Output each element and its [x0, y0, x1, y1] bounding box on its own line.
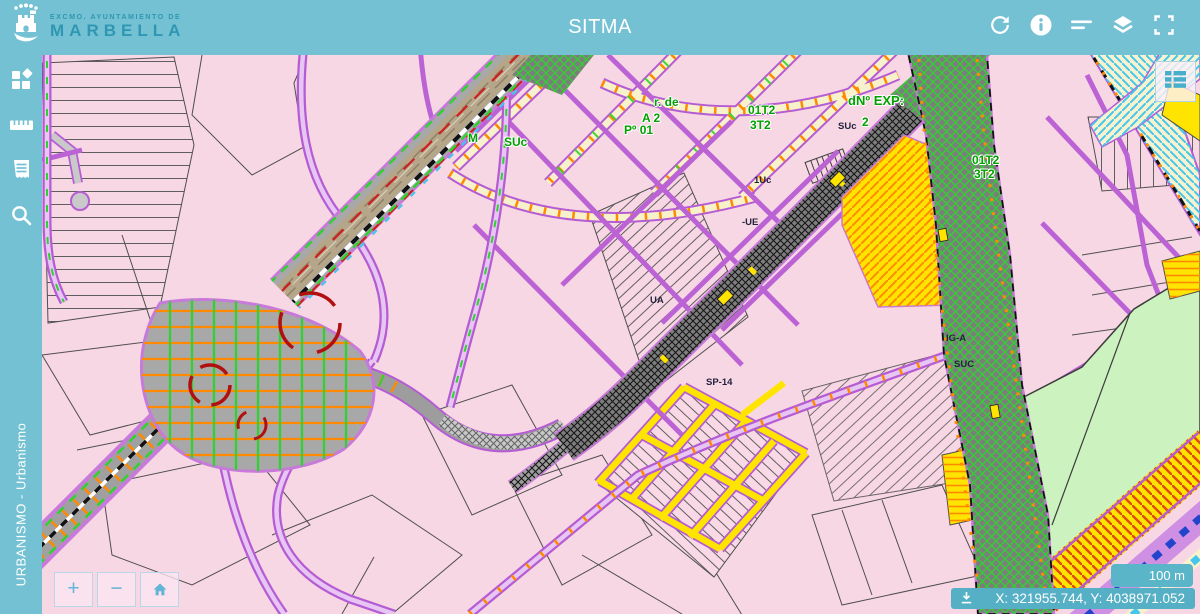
layers-button[interactable]	[1109, 14, 1137, 42]
sidebar-footer-label: URBANISMO - Urbanismo	[14, 422, 29, 586]
app-header: EXCMO. AYUNTAMIENTO DE MARBELLA SITMA	[0, 0, 1200, 55]
widgets-icon	[10, 68, 33, 96]
sidebar-item-forms[interactable]	[8, 159, 34, 185]
brand-text: EXCMO. AYUNTAMIENTO DE MARBELLA	[50, 14, 185, 40]
search-icon	[10, 204, 32, 231]
brand-line2: MARBELLA	[50, 22, 185, 41]
fullscreen-button[interactable]	[1150, 14, 1178, 42]
info-button[interactable]	[1027, 14, 1055, 42]
coordinates-bar[interactable]: X: 321955.744, Y: 4038971.052	[951, 588, 1195, 609]
fullscreen-icon	[1154, 15, 1174, 40]
scale-bar: 100 m	[1111, 564, 1193, 587]
sidebar-item-search[interactable]	[8, 204, 34, 230]
sidebar-item-widgets[interactable]	[8, 69, 34, 95]
coordinates-text: X: 321955.744, Y: 4038971.052	[995, 591, 1185, 606]
header-actions	[986, 14, 1200, 42]
layer-list-button[interactable]	[1155, 61, 1196, 102]
lines-icon	[1071, 16, 1093, 39]
zoom-out-button[interactable]: −	[97, 572, 136, 607]
basemap-svg	[42, 55, 1200, 614]
sidebar: URBANISMO - Urbanismo	[0, 55, 42, 614]
zoom-in-button[interactable]: +	[54, 572, 93, 607]
brand: EXCMO. AYUNTAMIENTO DE MARBELLA	[0, 3, 185, 52]
download-icon	[960, 591, 973, 607]
info-icon	[1029, 13, 1053, 42]
form-icon	[11, 158, 32, 186]
legend-button[interactable]	[1068, 14, 1096, 42]
marbella-logo-icon	[10, 3, 42, 52]
layers-icon	[1112, 15, 1134, 40]
home-icon	[149, 582, 171, 605]
sidebar-item-measure[interactable]	[8, 114, 34, 140]
map-canvas[interactable]: M SUc r. de A 2 Pº 01 01T2 3T2 dNº EXP: …	[42, 55, 1200, 614]
home-button[interactable]	[140, 572, 179, 607]
refresh-button[interactable]	[986, 14, 1014, 42]
layer-list-icon	[1164, 70, 1187, 94]
zoom-controls: + −	[54, 572, 179, 607]
sidebar-footer: URBANISMO - Urbanismo	[0, 404, 42, 604]
ruler-icon	[9, 115, 34, 140]
scale-label: 100 m	[1149, 568, 1185, 583]
refresh-icon	[989, 14, 1011, 41]
